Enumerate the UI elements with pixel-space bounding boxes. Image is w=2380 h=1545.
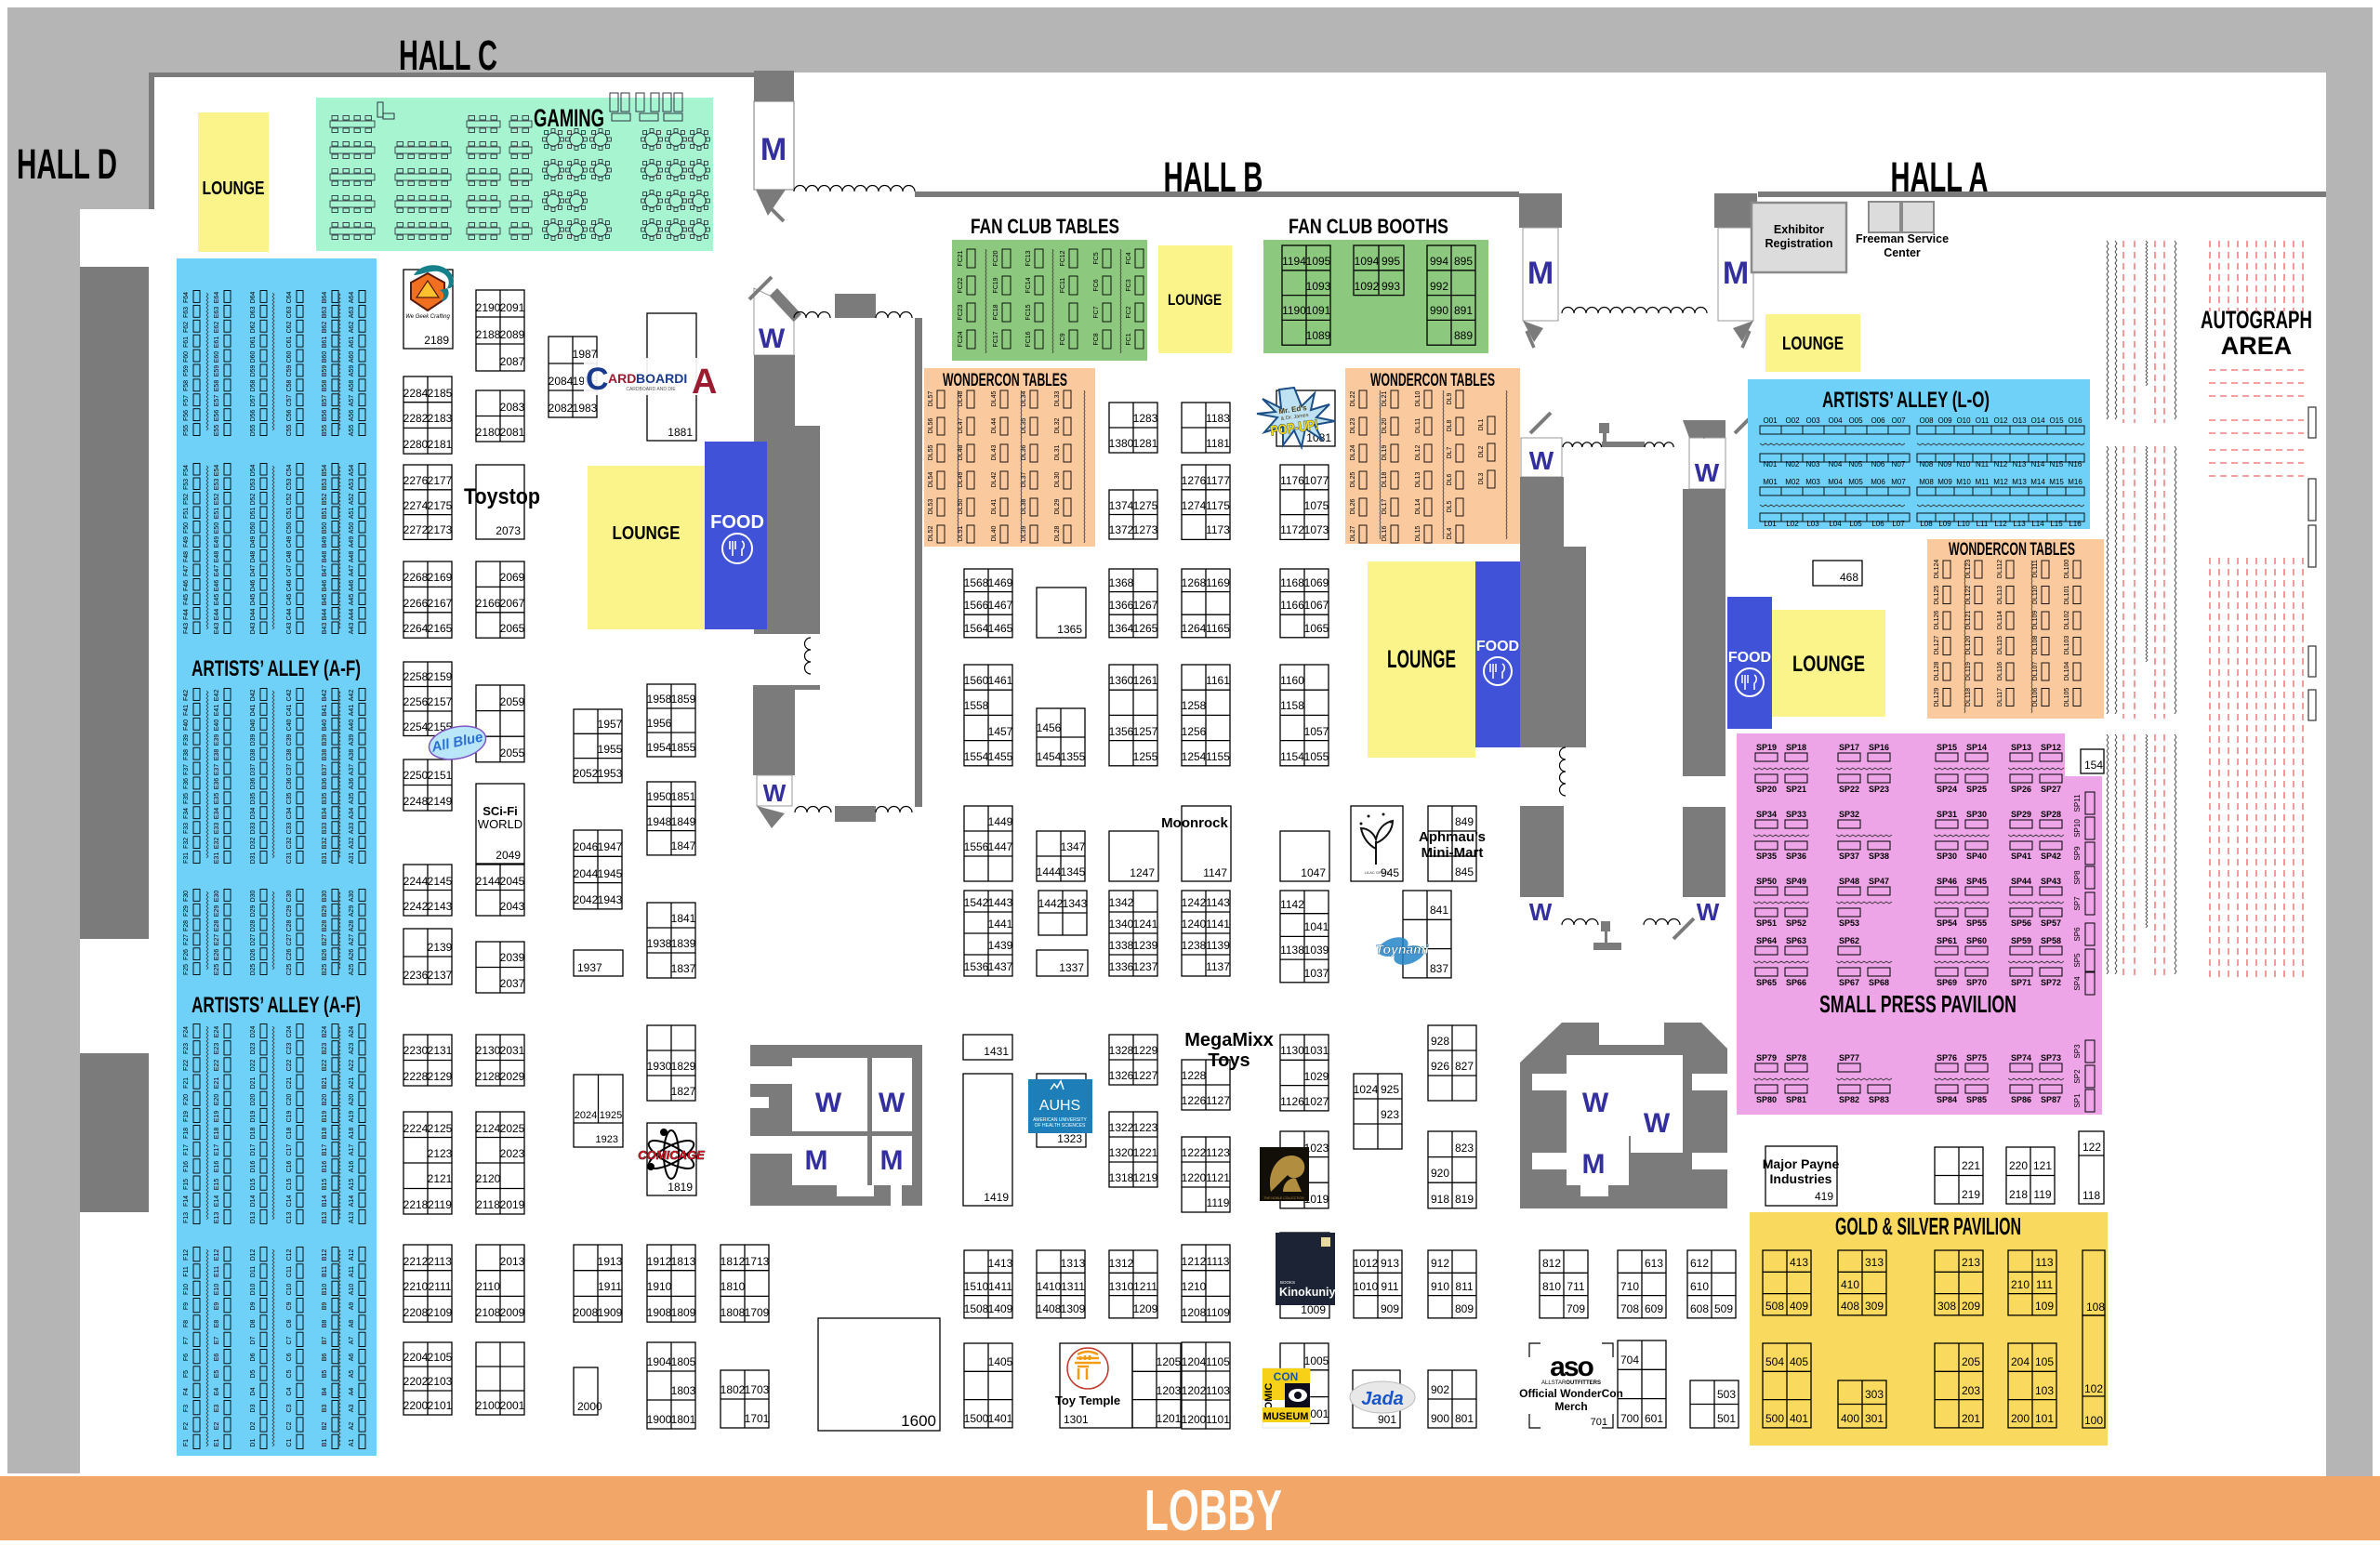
svg-text:B59: B59 (322, 365, 328, 377)
svg-text:B4: B4 (322, 1388, 328, 1396)
svg-text:2224: 2224 (403, 1122, 429, 1135)
svg-text:1461: 1461 (988, 674, 1013, 687)
svg-text:E20: E20 (214, 1094, 220, 1106)
svg-text:L14: L14 (2031, 520, 2044, 528)
svg-text:A50: A50 (349, 522, 355, 535)
svg-text:1095: 1095 (1306, 255, 1331, 268)
svg-text:M: M (1527, 256, 1554, 291)
svg-text:1092: 1092 (1355, 280, 1380, 293)
svg-text:700: 700 (1620, 1412, 1639, 1425)
svg-text:B34: B34 (322, 808, 328, 820)
svg-text:L13: L13 (2013, 520, 2026, 528)
svg-text:1190: 1190 (1282, 304, 1306, 317)
svg-text:D23: D23 (250, 1042, 257, 1054)
svg-text:1456: 1456 (1037, 721, 1062, 734)
svg-text:B44: B44 (322, 609, 328, 621)
svg-text:A60: A60 (349, 351, 355, 363)
svg-text:SP12: SP12 (2041, 743, 2061, 752)
svg-text:1345: 1345 (1061, 865, 1086, 878)
svg-text:A3: A3 (349, 1405, 355, 1413)
svg-text:1500: 1500 (964, 1412, 989, 1425)
svg-text:C39: C39 (286, 733, 293, 746)
svg-text:C6: C6 (286, 1353, 293, 1361)
svg-text:2137: 2137 (428, 969, 453, 982)
svg-text:889: 889 (1454, 329, 1473, 342)
svg-text:F30: F30 (183, 891, 190, 902)
svg-text:M: M (880, 1145, 904, 1176)
svg-text:D11: D11 (250, 1266, 257, 1277)
svg-text:A34: A34 (349, 808, 355, 820)
svg-text:D1: D1 (250, 1438, 257, 1446)
svg-text:A9: A9 (349, 1302, 355, 1311)
svg-text:DL119: DL119 (1965, 662, 1972, 680)
svg-text:C52: C52 (286, 493, 293, 505)
svg-text:A56: A56 (349, 410, 355, 422)
svg-text:N10: N10 (1957, 460, 1971, 469)
svg-text:2165: 2165 (428, 622, 453, 635)
svg-text:DL13: DL13 (1415, 472, 1421, 488)
svg-text:Mini-Mart: Mini-Mart (1421, 845, 1484, 861)
svg-text:468: 468 (1840, 571, 1858, 584)
svg-text:O01: O01 (1763, 416, 1778, 425)
svg-text:E31: E31 (214, 852, 220, 865)
svg-text:N11: N11 (1976, 460, 1990, 469)
svg-text:1855: 1855 (671, 741, 696, 754)
svg-text:1444: 1444 (1037, 865, 1062, 878)
svg-text:610: 610 (1690, 1280, 1709, 1293)
svg-text:C20: C20 (286, 1093, 293, 1105)
svg-text:D5: D5 (250, 1369, 257, 1378)
svg-text:B62: B62 (322, 322, 328, 334)
svg-text:DL123: DL123 (1965, 560, 1972, 579)
svg-text:M: M (760, 132, 787, 167)
svg-text:M12: M12 (1993, 478, 2008, 486)
svg-text:910: 910 (1431, 1280, 1449, 1293)
svg-text:2101: 2101 (428, 1399, 453, 1412)
svg-text:F50: F50 (183, 522, 190, 534)
svg-text:M05: M05 (1848, 478, 1863, 486)
svg-text:SP48: SP48 (1839, 877, 1859, 886)
svg-text:E48: E48 (214, 551, 220, 563)
svg-text:A28: A28 (349, 920, 355, 932)
svg-text:DL30: DL30 (1054, 472, 1061, 488)
svg-text:1908: 1908 (647, 1306, 672, 1319)
svg-text:2119: 2119 (428, 1198, 452, 1211)
svg-text:E44: E44 (214, 609, 220, 621)
svg-text:B38: B38 (322, 749, 328, 761)
svg-text:L11: L11 (1977, 520, 1989, 528)
svg-text:D19: D19 (250, 1110, 257, 1122)
svg-text:A6: A6 (349, 1354, 355, 1362)
svg-text:909: 909 (1381, 1302, 1399, 1315)
svg-text:213: 213 (1962, 1256, 1980, 1269)
svg-text:1229: 1229 (1133, 1044, 1158, 1057)
svg-text:B14: B14 (322, 1195, 328, 1208)
svg-text:E49: E49 (214, 536, 220, 548)
svg-text:1930: 1930 (647, 1060, 672, 1073)
svg-text:D59: D59 (250, 364, 257, 376)
svg-text:1338: 1338 (1109, 939, 1134, 952)
svg-text:F19: F19 (183, 1111, 190, 1122)
svg-text:F62: F62 (183, 322, 190, 333)
svg-text:1343: 1343 (1063, 897, 1088, 910)
svg-text:FC22: FC22 (958, 277, 964, 293)
svg-text:1881: 1881 (668, 426, 693, 439)
svg-text:Major Payne: Major Payne (1763, 1156, 1840, 1171)
svg-text:DL1: DL1 (1478, 418, 1485, 430)
svg-text:E53: E53 (214, 479, 220, 491)
svg-text:901: 901 (1378, 1413, 1396, 1426)
svg-text:301: 301 (1865, 1412, 1884, 1425)
svg-text:405: 405 (1790, 1355, 1808, 1368)
svg-text:1109: 1109 (1206, 1306, 1230, 1319)
svg-text:F63: F63 (183, 307, 190, 318)
svg-text:FC13: FC13 (1025, 250, 1032, 266)
svg-text:B48: B48 (322, 551, 328, 563)
svg-text:F6: F6 (183, 1354, 190, 1361)
svg-text:DL33: DL33 (1054, 391, 1061, 407)
svg-text:D51: D51 (250, 507, 257, 519)
svg-text:DL12: DL12 (1415, 445, 1421, 461)
svg-text:1841: 1841 (671, 912, 696, 925)
svg-text:2244: 2244 (403, 875, 429, 888)
svg-text:C12: C12 (286, 1248, 293, 1261)
svg-text:SP74: SP74 (2011, 1053, 2031, 1063)
svg-text:1220: 1220 (1182, 1171, 1207, 1184)
svg-text:FC4: FC4 (1126, 252, 1132, 264)
svg-text:1442: 1442 (1038, 897, 1064, 910)
svg-text:B11: B11 (322, 1266, 328, 1277)
svg-text:1449: 1449 (988, 815, 1013, 828)
svg-text:F26: F26 (183, 949, 190, 960)
svg-text:F39: F39 (183, 734, 190, 746)
svg-text:D30: D30 (250, 890, 257, 902)
svg-text:FC21: FC21 (958, 250, 964, 266)
svg-text:2001: 2001 (500, 1399, 525, 1412)
svg-text:W: W (1582, 1088, 1609, 1118)
svg-text:SP72: SP72 (2041, 978, 2061, 987)
svg-text:2008: 2008 (574, 1306, 599, 1319)
svg-text:C3: C3 (286, 1404, 293, 1412)
svg-text:2274: 2274 (403, 499, 429, 512)
svg-text:Jada: Jada (1361, 1389, 1404, 1409)
svg-text:2188: 2188 (476, 328, 501, 341)
svg-text:2144: 2144 (476, 875, 501, 888)
svg-text:F54: F54 (183, 465, 190, 476)
svg-text:2052: 2052 (574, 767, 599, 780)
svg-text:B39: B39 (322, 734, 328, 746)
svg-text:1953: 1953 (598, 767, 623, 780)
svg-text:A45: A45 (349, 594, 355, 606)
svg-text:102: 102 (2084, 1382, 2103, 1395)
svg-text:2110: 2110 (476, 1280, 500, 1293)
svg-text:2268: 2268 (403, 571, 429, 584)
svg-text:221: 221 (1962, 1159, 1980, 1172)
svg-text:E35: E35 (214, 793, 220, 805)
svg-text:1242: 1242 (1182, 896, 1207, 909)
svg-text:2000: 2000 (577, 1400, 602, 1413)
svg-text:F41: F41 (183, 705, 190, 716)
svg-text:B6: B6 (322, 1354, 328, 1362)
svg-text:1983: 1983 (573, 402, 598, 415)
svg-text:SP24: SP24 (1937, 785, 1957, 794)
svg-text:E46: E46 (214, 580, 220, 592)
svg-text:E54: E54 (214, 465, 220, 477)
svg-text:A17: A17 (349, 1144, 355, 1156)
svg-text:C61: C61 (286, 336, 293, 348)
svg-text:SP49: SP49 (1786, 877, 1806, 886)
svg-text:C55: C55 (286, 424, 293, 436)
svg-text:2173: 2173 (428, 523, 453, 536)
svg-text:1139: 1139 (1206, 939, 1230, 952)
svg-text:B18: B18 (322, 1128, 328, 1140)
svg-text:DL44: DL44 (991, 418, 998, 434)
svg-text:912: 912 (1431, 1257, 1449, 1270)
svg-text:1947: 1947 (598, 840, 623, 853)
svg-text:1155: 1155 (1206, 750, 1230, 763)
svg-text:308: 308 (1937, 1300, 1956, 1313)
svg-text:SP32: SP32 (1839, 810, 1859, 819)
svg-text:A8: A8 (349, 1320, 355, 1328)
svg-text:LOUNGE: LOUNGE (1168, 291, 1222, 309)
svg-text:W: W (1695, 458, 1720, 487)
svg-text:C22: C22 (286, 1059, 293, 1071)
svg-text:2204: 2204 (403, 1351, 429, 1364)
svg-text:E13: E13 (214, 1212, 220, 1224)
svg-text:SP60: SP60 (1966, 936, 1987, 945)
svg-text:2065: 2065 (500, 622, 525, 635)
svg-text:2024: 2024 (575, 1110, 597, 1121)
svg-text:1142: 1142 (1280, 898, 1304, 911)
svg-text:N04: N04 (1829, 460, 1843, 469)
svg-text:2045: 2045 (500, 875, 525, 888)
svg-text:DL114: DL114 (1997, 611, 2003, 629)
svg-text:1258: 1258 (1182, 699, 1207, 712)
svg-text:LOUNGE: LOUNGE (1387, 645, 1456, 673)
svg-text:823: 823 (1455, 1142, 1474, 1155)
svg-text:Toy Temple: Toy Temple (1055, 1393, 1120, 1407)
svg-text:D27: D27 (250, 933, 257, 945)
svg-text:2272: 2272 (403, 523, 429, 536)
svg-text:D16: D16 (250, 1160, 257, 1172)
svg-text:D52: D52 (250, 493, 257, 505)
svg-text:SP55: SP55 (1966, 918, 1987, 928)
svg-text:1925: 1925 (600, 1110, 622, 1121)
svg-text:Toystop: Toystop (464, 484, 540, 509)
svg-text:DL36: DL36 (1021, 445, 1027, 461)
svg-text:837: 837 (1430, 962, 1448, 975)
svg-text:E36: E36 (214, 778, 220, 790)
svg-text:Aphmau’s: Aphmau’s (1419, 829, 1486, 845)
svg-text:E62: E62 (214, 322, 220, 334)
svg-text:1703: 1703 (745, 1383, 770, 1396)
svg-text:FC11: FC11 (1060, 278, 1066, 294)
svg-text:2120: 2120 (476, 1172, 501, 1185)
svg-text:D22: D22 (250, 1059, 257, 1071)
svg-text:1431: 1431 (984, 1045, 1009, 1058)
svg-text:SP18: SP18 (1786, 743, 1806, 752)
svg-text:109: 109 (2035, 1300, 2054, 1313)
svg-text:E17: E17 (214, 1144, 220, 1156)
svg-text:118: 118 (2082, 1189, 2100, 1202)
svg-text:2029: 2029 (500, 1070, 525, 1083)
svg-text:1366: 1366 (1109, 599, 1134, 612)
svg-text:1009: 1009 (1301, 1303, 1326, 1316)
svg-text:1264: 1264 (1182, 622, 1207, 635)
svg-text:SP14: SP14 (1966, 743, 1987, 752)
svg-text:B16: B16 (322, 1161, 328, 1173)
svg-text:DL48: DL48 (958, 445, 964, 461)
svg-text:W: W (1529, 446, 1554, 475)
svg-text:C24: C24 (286, 1025, 293, 1037)
svg-text:O15: O15 (2049, 416, 2064, 425)
svg-text:C50: C50 (286, 522, 293, 534)
svg-text:1900: 1900 (647, 1413, 672, 1426)
svg-text:B64: B64 (322, 292, 328, 304)
svg-text:D18: D18 (250, 1127, 257, 1139)
svg-text:L06: L06 (1871, 520, 1884, 528)
svg-text:SP65: SP65 (1756, 978, 1777, 987)
svg-text:2091: 2091 (500, 301, 525, 314)
svg-text:A51: A51 (349, 508, 355, 520)
svg-text:F11: F11 (183, 1266, 190, 1277)
svg-text:809: 809 (1455, 1302, 1474, 1315)
svg-text:B2: B2 (322, 1422, 328, 1431)
svg-text:2129: 2129 (428, 1070, 453, 1083)
svg-text:C25: C25 (286, 963, 293, 975)
svg-text:SP84: SP84 (1937, 1095, 1957, 1104)
svg-text:C17: C17 (286, 1143, 293, 1155)
svg-text:2067: 2067 (500, 597, 525, 610)
svg-text:1465: 1465 (988, 622, 1013, 635)
svg-text:1320: 1320 (1109, 1146, 1134, 1159)
svg-text:F64: F64 (183, 292, 190, 303)
svg-text:913: 913 (1381, 1257, 1399, 1270)
svg-text:1166: 1166 (1280, 599, 1304, 612)
svg-text:FC17: FC17 (993, 331, 999, 347)
svg-text:D25: D25 (250, 963, 257, 975)
svg-text:SP27: SP27 (2041, 785, 2061, 794)
svg-text:2175: 2175 (428, 499, 453, 512)
svg-text:SP35: SP35 (1756, 852, 1777, 861)
svg-text:C62: C62 (286, 321, 293, 333)
svg-text:DL16: DL16 (1382, 526, 1388, 542)
svg-text:N15: N15 (2050, 460, 2064, 469)
svg-text:DL31: DL31 (1054, 445, 1061, 461)
svg-text:1138: 1138 (1280, 944, 1304, 957)
svg-text:E64: E64 (214, 292, 220, 304)
svg-text:CON: CON (1274, 1370, 1299, 1383)
svg-text:1912: 1912 (647, 1255, 672, 1268)
svg-text:B41: B41 (322, 705, 328, 717)
svg-text:812: 812 (1542, 1257, 1561, 1270)
svg-text:DL17: DL17 (1382, 499, 1388, 515)
svg-text:DL124: DL124 (1934, 560, 1940, 579)
svg-text:E3: E3 (214, 1405, 220, 1413)
svg-text:L07: L07 (1892, 520, 1905, 528)
svg-text:1239: 1239 (1133, 939, 1158, 952)
svg-text:SP83: SP83 (1869, 1095, 1889, 1104)
svg-text:1508: 1508 (964, 1302, 989, 1315)
svg-text:D42: D42 (250, 689, 257, 701)
svg-text:1322: 1322 (1109, 1121, 1134, 1134)
svg-text:F16: F16 (183, 1161, 190, 1172)
svg-text:Freeman Service: Freeman Service (1856, 232, 1949, 245)
svg-text:928: 928 (1431, 1035, 1449, 1048)
svg-text:1356: 1356 (1109, 725, 1134, 738)
svg-text:1360: 1360 (1109, 674, 1134, 687)
svg-text:1200: 1200 (1182, 1413, 1207, 1426)
svg-text:1311: 1311 (1061, 1280, 1085, 1293)
svg-text:SP5: SP5 (2073, 953, 2082, 968)
svg-text:F17: F17 (183, 1144, 190, 1155)
svg-text:SP62: SP62 (1839, 936, 1859, 945)
svg-text:Center: Center (1884, 246, 1921, 259)
svg-text:1204: 1204 (1182, 1355, 1207, 1368)
svg-text:1075: 1075 (1304, 499, 1329, 512)
svg-text:D21: D21 (250, 1076, 257, 1089)
svg-text:1172: 1172 (1280, 523, 1304, 536)
svg-text:1958: 1958 (647, 693, 672, 706)
svg-text:F61: F61 (183, 337, 190, 348)
svg-text:Toynami: Toynami (1375, 942, 1429, 957)
svg-text:1803: 1803 (671, 1384, 696, 1397)
svg-text:D13: D13 (250, 1211, 257, 1223)
svg-text:A41: A41 (349, 705, 355, 717)
svg-text:AUHS: AUHS (1039, 1098, 1080, 1114)
svg-text:E27: E27 (214, 934, 220, 946)
svg-text:FC2: FC2 (1126, 306, 1132, 318)
svg-text:M13: M13 (2012, 478, 2027, 486)
svg-text:E8: E8 (214, 1320, 220, 1328)
svg-text:SP16: SP16 (1869, 743, 1889, 752)
svg-text:A64: A64 (349, 292, 355, 304)
svg-text:ARTISTS’ ALLEY (A-F): ARTISTS’ ALLEY (A-F) (192, 656, 361, 681)
svg-text:A54: A54 (349, 465, 355, 477)
svg-text:1813: 1813 (671, 1255, 696, 1268)
svg-text:E7: E7 (214, 1337, 220, 1345)
svg-text:108: 108 (2086, 1301, 2105, 1314)
svg-text:B36: B36 (322, 778, 328, 790)
svg-text:F48: F48 (183, 551, 190, 562)
svg-text:C48: C48 (286, 550, 293, 562)
svg-text:1055: 1055 (1304, 750, 1329, 763)
svg-text:201: 201 (1962, 1412, 1980, 1425)
svg-text:994: 994 (1430, 255, 1448, 268)
svg-text:1073: 1073 (1304, 523, 1329, 536)
svg-text:1812: 1812 (721, 1255, 746, 1268)
svg-text:B22: B22 (322, 1060, 328, 1072)
svg-text:2166: 2166 (476, 597, 501, 610)
svg-text:SP3: SP3 (2073, 1044, 2082, 1059)
svg-text:C26: C26 (286, 948, 293, 960)
svg-text:1554: 1554 (964, 750, 989, 763)
svg-text:C10: C10 (286, 1283, 293, 1295)
svg-text:E21: E21 (214, 1077, 220, 1089)
svg-text:2069: 2069 (500, 571, 525, 584)
svg-text:1137: 1137 (1206, 960, 1230, 973)
svg-text:DL54: DL54 (928, 472, 934, 488)
svg-text:2280: 2280 (403, 438, 429, 451)
svg-text:1168: 1168 (1280, 576, 1304, 589)
svg-text:DL109: DL109 (2032, 611, 2039, 630)
svg-text:1212: 1212 (1182, 1255, 1207, 1268)
svg-text:2202: 2202 (403, 1375, 429, 1388)
svg-text:N13: N13 (2013, 460, 2027, 469)
svg-text:704: 704 (1620, 1354, 1639, 1367)
svg-text:SP82: SP82 (1839, 1095, 1859, 1104)
svg-text:601: 601 (1645, 1412, 1663, 1425)
